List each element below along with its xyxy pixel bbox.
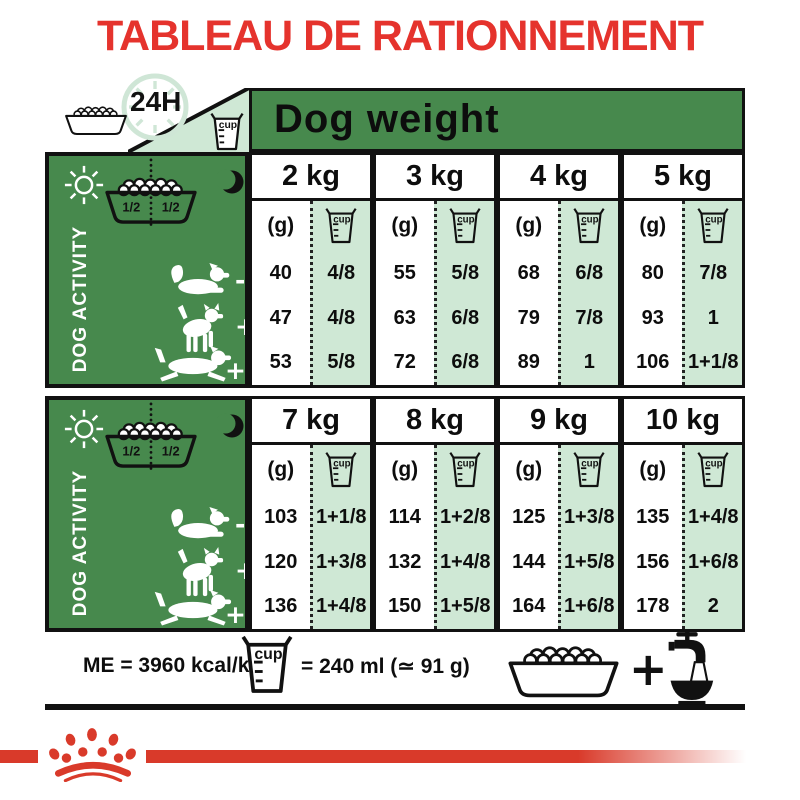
ration-grams: 136: [252, 584, 310, 629]
measuring-cup-icon: cup: [241, 634, 293, 696]
ration-cups: 5/8: [437, 251, 495, 296]
activity-marker-low: -: [235, 268, 245, 293]
weight-header: 7 kg: [252, 399, 370, 445]
ration-cups: 1+6/8: [561, 584, 619, 629]
svg-text:cup: cup: [705, 214, 722, 225]
ration-section-small: 1/2 1/2 DOG ACTIVITY -: [45, 152, 745, 388]
ration-cups: 1+4/8: [437, 540, 495, 585]
measuring-cup-icon: cup: [325, 207, 357, 245]
ration-grams: 89: [500, 340, 558, 385]
ration-cups: 6/8: [561, 251, 619, 296]
measuring-cup-icon: cup: [573, 451, 605, 489]
weight-column: 9 kg (g) 125 144 164 cup 1+3/8 1+5/8 1+6…: [497, 396, 621, 632]
ration-grams: 135: [624, 495, 682, 540]
ration-grams: 106: [624, 340, 682, 385]
grams-unit-label: (g): [252, 201, 310, 251]
ration-grams: 47: [252, 296, 310, 341]
measuring-cup-icon: cup: [325, 451, 357, 489]
weight-column: 5 kg (g) 80 93 106 cup 7/8 1 1+1/8: [621, 152, 745, 388]
ration-cups: 1+3/8: [313, 540, 371, 585]
ration-cups: 6/8: [437, 340, 495, 385]
weight-columns: 2 kg (g) 40 47 53 cup 4/8 4/8 5/8 3 kg: [249, 152, 745, 388]
brand-band-left: [0, 750, 38, 763]
brand-band-right: [146, 750, 746, 763]
moon-icon: [217, 168, 245, 196]
ration-grams: 68: [500, 251, 558, 296]
ration-cups: 2: [685, 584, 743, 629]
hours-label: 24H: [130, 86, 181, 118]
measuring-cup-icon: cup: [697, 451, 729, 489]
ration-cups: 1+3/8: [561, 495, 619, 540]
sun-icon: [63, 164, 105, 206]
dog-weight-header: Dog weight: [249, 88, 745, 152]
measuring-cup-icon: cup: [210, 112, 244, 152]
activity-marker-low: -: [235, 512, 245, 537]
svg-text:cup: cup: [333, 214, 350, 225]
grams-unit-label: (g): [500, 445, 558, 495]
ration-grams: 63: [376, 296, 434, 341]
ration-cups: 7/8: [561, 296, 619, 341]
ration-grams: 164: [500, 584, 558, 629]
weight-column: 4 kg (g) 68 79 89 cup 6/8 7/8 1: [497, 152, 621, 388]
half-split-bowl-icon: 1/2 1/2: [101, 402, 201, 474]
ration-cups: 6/8: [437, 296, 495, 341]
ration-grams: 80: [624, 251, 682, 296]
svg-text:1/2: 1/2: [122, 199, 140, 214]
weight-column: 2 kg (g) 40 47 53 cup 4/8 4/8 5/8: [249, 152, 373, 388]
ration-cups: 1+5/8: [561, 540, 619, 585]
footer-info-band: ME = 3960 kcal/kg cup = 240 ml (≃ 91 g) …: [45, 632, 745, 710]
dog-activity-label: DOG ACTIVITY: [70, 219, 94, 379]
sun-icon: [63, 408, 105, 450]
activity-marker-high: ++: [225, 602, 249, 627]
svg-text:1/2: 1/2: [162, 199, 180, 214]
weight-header: 5 kg: [624, 155, 742, 201]
grams-unit-label: (g): [624, 201, 682, 251]
running-dog-icon: [151, 346, 233, 386]
svg-text:cup: cup: [581, 214, 598, 225]
ration-cups: 7/8: [685, 251, 743, 296]
grams-unit-label: (g): [376, 445, 434, 495]
svg-text:cup: cup: [219, 120, 237, 131]
water-faucet-icon: [657, 630, 719, 706]
activity-marker-medium: +: [235, 558, 249, 583]
weight-column: 7 kg (g) 103 120 136 cup 1+1/8 1+3/8 1+4…: [249, 396, 373, 632]
ration-cups: 1+1/8: [313, 495, 371, 540]
ration-cups: 1+4/8: [313, 584, 371, 629]
resting-dog-icon: [167, 506, 231, 542]
ration-grams: 93: [624, 296, 682, 341]
ration-cups: 1+5/8: [437, 584, 495, 629]
weight-header: 10 kg: [624, 399, 742, 445]
metabolizable-energy-label: ME = 3960 kcal/kg: [83, 654, 262, 678]
ration-grams: 156: [624, 540, 682, 585]
food-bowl-icon: [62, 94, 130, 142]
ration-cups: 1: [685, 296, 743, 341]
ration-grams: 79: [500, 296, 558, 341]
ration-grams: 125: [500, 495, 558, 540]
ration-grams: 132: [376, 540, 434, 585]
grams-unit-label: (g): [500, 201, 558, 251]
ration-section-large: 1/2 1/2 DOG ACTIVITY -: [45, 396, 745, 632]
ration-cups: 4/8: [313, 296, 371, 341]
ration-cups: 1+6/8: [685, 540, 743, 585]
measuring-cup-icon: cup: [697, 207, 729, 245]
weight-header: 2 kg: [252, 155, 370, 201]
measuring-cup-icon: cup: [449, 451, 481, 489]
activity-marker-high: ++: [225, 358, 249, 383]
ration-cups: 1+4/8: [685, 495, 743, 540]
grams-unit-label: (g): [624, 445, 682, 495]
weight-column: 8 kg (g) 114 132 150 cup 1+2/8 1+4/8 1+5…: [373, 396, 497, 632]
svg-text:cup: cup: [457, 214, 474, 225]
svg-text:cup: cup: [705, 458, 722, 469]
dog-weight-label: Dog weight: [252, 91, 742, 147]
grams-unit-label: (g): [376, 201, 434, 251]
weight-columns: 7 kg (g) 103 120 136 cup 1+1/8 1+3/8 1+4…: [249, 396, 745, 632]
food-bowl-icon: [501, 634, 626, 700]
running-dog-icon: [151, 590, 233, 630]
measuring-cup-icon: cup: [449, 207, 481, 245]
svg-text:cup: cup: [333, 458, 350, 469]
dog-activity-label: DOG ACTIVITY: [70, 463, 94, 623]
ration-cups: 4/8: [313, 251, 371, 296]
weight-header: 3 kg: [376, 155, 494, 201]
ration-grams: 55: [376, 251, 434, 296]
dog-activity-panel: 1/2 1/2 DOG ACTIVITY -: [45, 152, 249, 388]
weight-header: 8 kg: [376, 399, 494, 445]
svg-text:cup: cup: [254, 646, 283, 663]
moon-icon: [217, 412, 245, 440]
ration-grams: 114: [376, 495, 434, 540]
activity-marker-medium: +: [235, 314, 249, 339]
ration-grams: 178: [624, 584, 682, 629]
page-title: TABLEAU DE RATIONNEMENT: [0, 12, 800, 61]
ration-cups: 5/8: [313, 340, 371, 385]
weight-column: 3 kg (g) 55 63 72 cup 5/8 6/8 6/8: [373, 152, 497, 388]
ration-grams: 144: [500, 540, 558, 585]
ration-cups: 1+1/8: [685, 340, 743, 385]
crown-logo: [44, 726, 142, 782]
cup-equivalence-label: = 240 ml (≃ 91 g): [301, 654, 470, 679]
weight-header: 4 kg: [500, 155, 618, 201]
ration-grams: 150: [376, 584, 434, 629]
resting-dog-icon: [167, 262, 231, 298]
dog-activity-panel: 1/2 1/2 DOG ACTIVITY -: [45, 396, 249, 632]
ration-grams: 120: [252, 540, 310, 585]
half-split-bowl-icon: 1/2 1/2: [101, 158, 201, 230]
svg-text:cup: cup: [581, 458, 598, 469]
grams-unit-label: (g): [252, 445, 310, 495]
svg-text:1/2: 1/2: [122, 443, 140, 458]
weight-header: 9 kg: [500, 399, 618, 445]
ration-grams: 53: [252, 340, 310, 385]
measuring-cup-icon: cup: [573, 207, 605, 245]
ration-cups: 1: [561, 340, 619, 385]
ration-grams: 40: [252, 251, 310, 296]
ration-grams: 72: [376, 340, 434, 385]
ration-grams: 103: [252, 495, 310, 540]
weight-column: 10 kg (g) 135 156 178 cup 1+4/8 1+6/8 2: [621, 396, 745, 632]
svg-text:cup: cup: [457, 458, 474, 469]
svg-text:1/2: 1/2: [162, 443, 180, 458]
ration-cups: 1+2/8: [437, 495, 495, 540]
